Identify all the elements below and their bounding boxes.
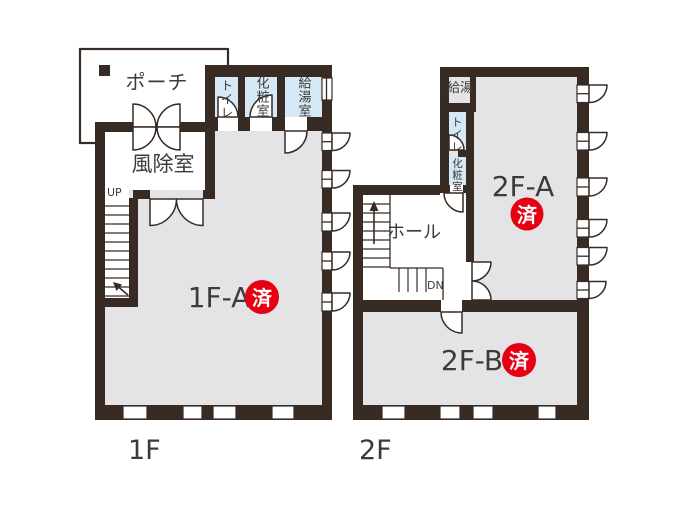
room-1fa-label: 1F-A [188, 281, 251, 314]
status-badge-2fb-text: 済 [509, 349, 530, 373]
casement-window [322, 213, 350, 231]
casement-window [577, 282, 606, 299]
room-2fb-label: 2F-B [441, 344, 503, 377]
powder-room-1f-label: 化粧室 [254, 76, 270, 118]
powder-room-2f-label: 化粧室 [451, 157, 463, 192]
floor-1-plan: ポーチ 風除室 トイレ 化粧室 給湯室 UP 1F-A 済 1F [80, 49, 350, 466]
hall-label: ホール [387, 222, 441, 243]
floor-plan-canvas: ポーチ 風除室 トイレ 化粧室 給湯室 UP 1F-A 済 1F [0, 0, 687, 509]
casement-window [322, 171, 350, 189]
casement-window [322, 293, 350, 311]
toilet-2f-label: トイレ [450, 116, 464, 154]
porch-label: ポーチ [126, 70, 189, 94]
stairs-up-label: UP [107, 186, 122, 199]
hot-water-label: 給湯 [447, 81, 473, 96]
floor-2-plan: 給湯 トイレ 化粧室 ホール DN 2F-A 済 2F-B 済 2F [353, 67, 607, 466]
casement-window [577, 178, 607, 196]
floor-2-label: 2F [359, 435, 392, 466]
floorplan-image: ポーチ 風除室 トイレ 化粧室 給湯室 UP 1F-A 済 1F [0, 0, 687, 509]
toilet-1f-label: トイレ [219, 79, 234, 120]
kitchenette-label: 給湯室 [296, 76, 312, 118]
casement-window [577, 133, 607, 151]
status-badge-1fa: 済 [245, 280, 279, 314]
casement-window [322, 252, 350, 270]
status-badge-2fa: 済 [511, 198, 544, 231]
porch-column [99, 65, 110, 76]
status-badge-2fa-text: 済 [517, 203, 538, 227]
status-badge-2fb: 済 [502, 343, 536, 377]
casement-window [577, 248, 607, 266]
casement-window [577, 220, 607, 238]
casement-window [577, 85, 607, 103]
floor-1-label: 1F [128, 435, 161, 466]
hall-floor [363, 195, 466, 300]
casement-window [322, 133, 350, 151]
status-badge-1fa-text: 済 [252, 286, 273, 310]
stairs-dn-label: DN [427, 279, 444, 292]
windbreak-label: 風除室 [132, 152, 195, 176]
stair-enclosure-wall [129, 198, 138, 307]
